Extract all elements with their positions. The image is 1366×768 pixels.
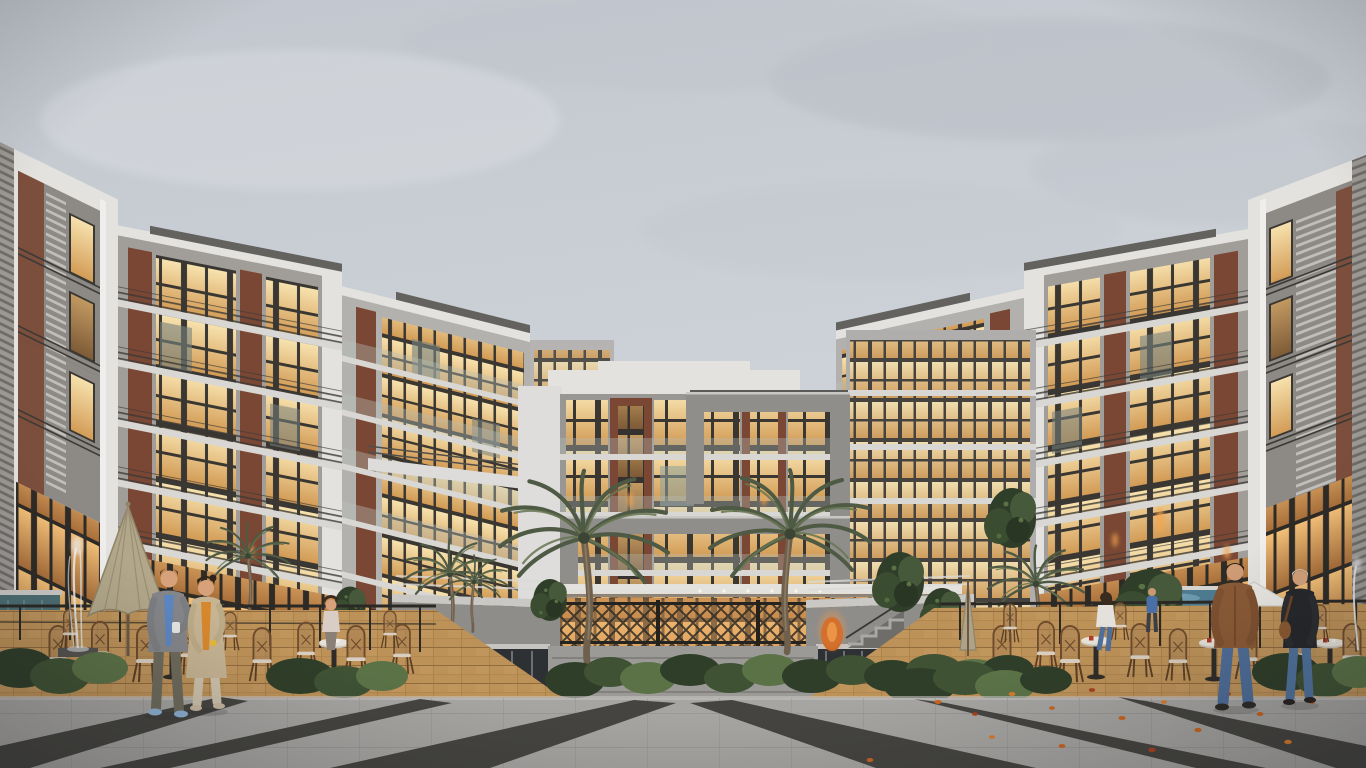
vignette (0, 0, 1366, 768)
architectural-render (0, 0, 1366, 768)
scene-svg (0, 0, 1366, 768)
